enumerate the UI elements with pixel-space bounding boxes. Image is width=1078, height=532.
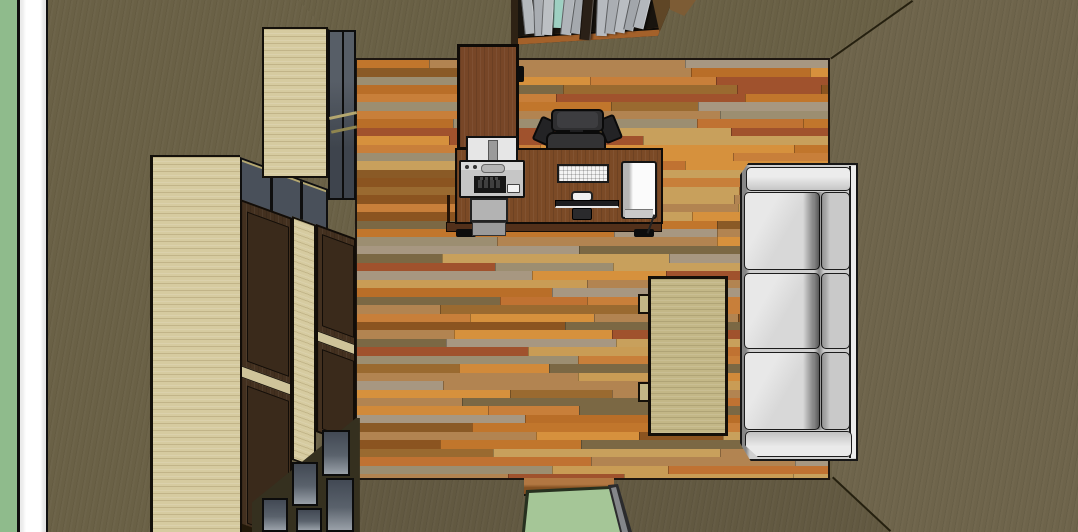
- sofa-seat-cushion: [744, 192, 820, 270]
- monitor[interactable]: [555, 200, 619, 208]
- band-mullion: [300, 181, 303, 223]
- sofa-crease-shadow: [814, 192, 824, 430]
- monitor-stand: [572, 208, 592, 220]
- sofa-back-frame: [849, 166, 856, 458]
- cabinet-divider-column: [292, 216, 316, 469]
- exterior-ground-strip: [0, 0, 17, 532]
- cabinet-top-face[interactable]: [150, 155, 240, 532]
- paper-feeder: [466, 136, 518, 162]
- sofa-seat-cushion: [744, 352, 820, 430]
- printer-button[interactable]: [465, 165, 469, 169]
- printer-key[interactable]: [507, 184, 520, 193]
- computer-tower[interactable]: [621, 161, 657, 219]
- paper-tray: [470, 198, 508, 222]
- printer-control-panel[interactable]: [474, 176, 506, 193]
- printer[interactable]: [459, 160, 525, 198]
- sofa-armrest: [745, 431, 852, 457]
- paper-tray-ext: [472, 222, 506, 236]
- sofa-armrest: [746, 167, 851, 191]
- shelf-divider-post: [579, 0, 594, 40]
- sofa-seat-cushion: [744, 273, 820, 349]
- sofa-back-cushion: [821, 192, 850, 270]
- door-panel: [247, 212, 289, 377]
- panel-keys: [478, 180, 500, 188]
- tall-cabinet-glass: [328, 30, 356, 200]
- glass-cell: [296, 508, 322, 532]
- floor-plank: [793, 474, 830, 480]
- cabinet-door-column[interactable]: [316, 224, 356, 447]
- floor-plank: [624, 474, 795, 480]
- glass-shelf-edge: [331, 125, 357, 133]
- glass-cell: [292, 462, 318, 506]
- door-panel: [322, 234, 354, 338]
- panel-bumps: [480, 177, 498, 180]
- sofa-back-cushion: [821, 352, 850, 430]
- wall-cut-edge-line: [46, 0, 48, 532]
- book-spine: [541, 0, 554, 35]
- glass-cell: [322, 430, 350, 476]
- chair-backrest-pad: [557, 112, 598, 128]
- east-wall: [828, 0, 1078, 532]
- sofa-back-cushion: [821, 273, 850, 349]
- tall-cabinet-top[interactable]: [262, 27, 328, 178]
- 3d-room-viewport[interactable]: [0, 0, 1078, 532]
- hutch-handle: [517, 66, 524, 82]
- printer-pill-button[interactable]: [481, 164, 505, 173]
- glass-cell: [326, 478, 354, 532]
- tower-base: [625, 209, 653, 218]
- keyboard[interactable]: [557, 164, 609, 183]
- printer-button[interactable]: [473, 165, 477, 169]
- sofa[interactable]: [740, 163, 858, 461]
- feeder-slot: [488, 140, 498, 161]
- floor-plank: [357, 474, 509, 480]
- wall-section-cut: [20, 0, 46, 532]
- desk-foot: [634, 229, 654, 237]
- coffee-table[interactable]: [648, 276, 728, 436]
- glass-cell: [262, 498, 288, 532]
- desk-hutch[interactable]: [457, 44, 519, 150]
- bookcase-left-frame: [511, 0, 518, 45]
